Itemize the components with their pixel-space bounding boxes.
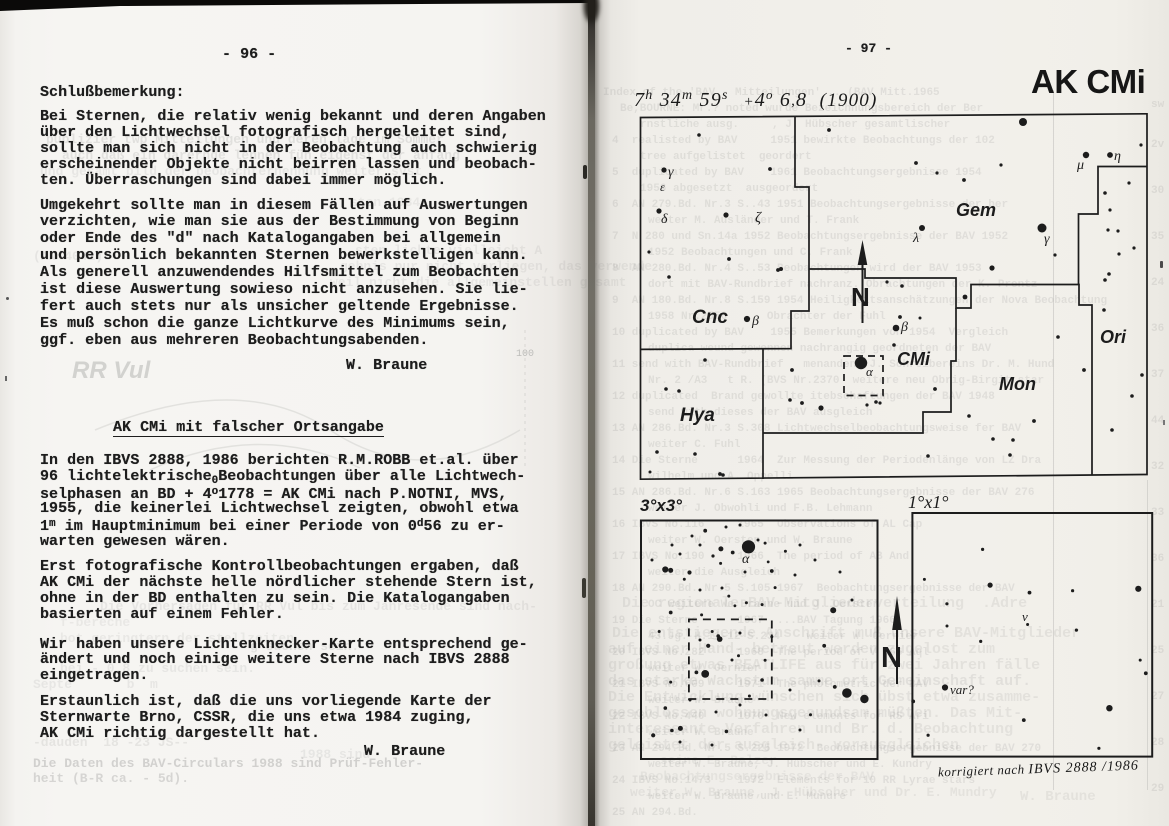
svg-text:ε: ε [660,180,665,194]
svg-text:λ: λ [912,231,919,246]
svg-text:β: β [900,320,908,335]
svg-text:CMi: CMi [897,349,931,369]
svg-text:Hya: Hya [680,405,715,426]
svg-text:v: v [1022,609,1028,624]
svg-text:γ: γ [668,165,674,180]
svg-text:γ: γ [1044,232,1050,247]
svg-text:Mon: Mon [999,374,1036,394]
svg-text:Gem: Gem [956,200,996,220]
svg-text:α: α [866,364,874,379]
svg-text:Ori: Ori [1100,327,1127,347]
svg-text:ζ: ζ [755,210,762,226]
svg-text:δ: δ [661,212,668,227]
svg-text:μ: μ [1076,158,1084,173]
svg-text:1°x1°: 1°x1° [908,492,948,512]
svg-text:Cnc: Cnc [692,307,728,328]
svg-text:3°x3°: 3°x3° [640,496,682,515]
svg-text:α: α [742,552,750,567]
svg-text:N: N [881,642,902,674]
svg-text:β: β [751,314,759,329]
svg-text:var?: var? [950,682,974,697]
svg-text:N: N [851,282,870,312]
svg-text:η: η [1114,149,1121,164]
